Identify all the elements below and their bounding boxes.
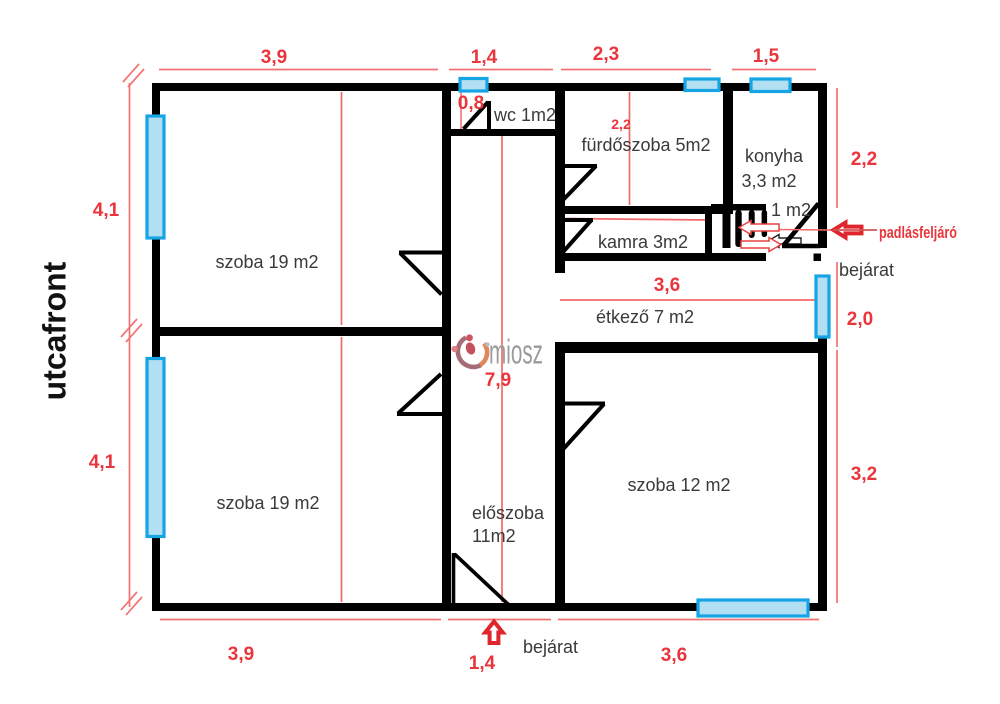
svg-text:wc 1m2: wc 1m2 <box>493 105 556 125</box>
svg-text:fürdőszoba 5m2: fürdőszoba 5m2 <box>581 135 710 155</box>
svg-text:előszoba: előszoba <box>472 503 545 523</box>
svg-text:étkező 7 m2: étkező 7 m2 <box>596 307 694 327</box>
svg-text:padlásfeljáró: padlásfeljáró <box>879 224 957 242</box>
svg-text:2,0: 2,0 <box>847 309 873 330</box>
svg-text:2,2: 2,2 <box>611 116 631 132</box>
svg-text:3,6: 3,6 <box>654 275 680 296</box>
svg-text:2,3: 2,3 <box>593 44 619 65</box>
svg-text:bejárat: bejárat <box>523 637 578 657</box>
svg-text:3,3 m2: 3,3 m2 <box>741 171 796 191</box>
svg-text:miosz: miosz <box>489 334 543 372</box>
svg-text:szoba 19 m2: szoba 19 m2 <box>215 252 318 272</box>
svg-text:0,8: 0,8 <box>458 93 484 114</box>
svg-text:7,9: 7,9 <box>485 370 511 391</box>
svg-text:szoba 12 m2: szoba 12 m2 <box>627 475 730 495</box>
svg-text:1,4: 1,4 <box>469 653 496 674</box>
svg-text:utcafront: utcafront <box>37 261 73 400</box>
svg-text:3,9: 3,9 <box>228 644 254 665</box>
svg-text:3,6: 3,6 <box>661 645 687 666</box>
svg-text:4,1: 4,1 <box>93 200 120 221</box>
svg-text:1,4: 1,4 <box>471 47 498 68</box>
svg-text:szoba 19 m2: szoba 19 m2 <box>216 493 319 513</box>
svg-text:3,9: 3,9 <box>261 47 287 68</box>
svg-text:11m2: 11m2 <box>472 526 516 546</box>
svg-text:2,2: 2,2 <box>851 149 877 170</box>
svg-text:bejárat: bejárat <box>839 260 894 280</box>
svg-text:1 m2: 1 m2 <box>771 200 811 220</box>
svg-text:3,2: 3,2 <box>851 464 877 485</box>
svg-text:1,5: 1,5 <box>753 46 780 67</box>
svg-text:kamra 3m2: kamra 3m2 <box>598 232 688 252</box>
svg-text:konyha: konyha <box>745 146 804 166</box>
svg-text:4,1: 4,1 <box>89 452 116 473</box>
